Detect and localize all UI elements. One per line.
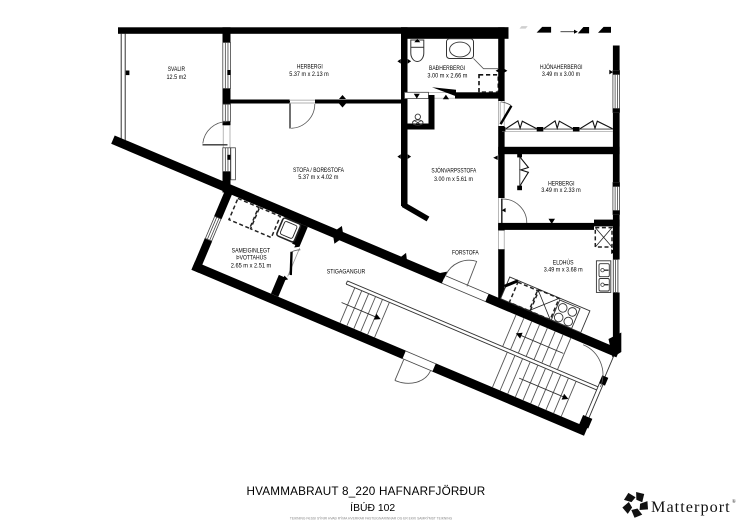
svg-text:2.65 m x 2.51 m: 2.65 m x 2.51 m [231, 262, 272, 269]
svg-text:FORSTOFA: FORSTOFA [452, 249, 479, 256]
svg-text:Matterport: Matterport [651, 498, 731, 516]
svg-text:®: ® [732, 499, 736, 505]
svg-text:HERBERGI: HERBERGI [297, 64, 323, 71]
svg-text:HVAMMABRAUT 8_220 HAFNARFJÖRÐU: HVAMMABRAUT 8_220 HAFNARFJÖRÐUR [247, 485, 486, 498]
svg-text:TEIKNING ÞESSI SÝNIR HVAÐ RÝMA: TEIKNING ÞESSI SÝNIR HVAÐ RÝMA HVERRAR F… [290, 517, 453, 521]
svg-text:ÞVOTTAHÚS: ÞVOTTAHÚS [236, 253, 267, 262]
svg-text:12.5 m2: 12.5 m2 [167, 74, 187, 81]
svg-text:3.49 m x 3.68 m: 3.49 m x 3.68 m [544, 267, 583, 274]
svg-text:5.37 m x 2.13 m: 5.37 m x 2.13 m [289, 71, 329, 78]
svg-text:SAMEIGINLEGT: SAMEIGINLEGT [232, 248, 271, 255]
svg-text:3.00 m x 5.61 m: 3.00 m x 5.61 m [434, 176, 473, 183]
svg-text:SVALIR: SVALIR [168, 66, 186, 73]
svg-text:5.37 m x 4.02 m: 5.37 m x 4.02 m [298, 174, 338, 181]
svg-text:BAÐHERBERGI: BAÐHERBERGI [429, 65, 465, 72]
svg-text:ÍBÚÐ 102: ÍBÚÐ 102 [350, 503, 395, 514]
svg-text:SJÓNVARPSSTOFA: SJÓNVARPSSTOFA [431, 165, 476, 174]
svg-text:STOFA / BORÐSTOFA: STOFA / BORÐSTOFA [293, 167, 345, 174]
svg-text:HJÓNAHERBERGI: HJÓNAHERBERGI [540, 62, 583, 71]
svg-text:ELDHÚS: ELDHÚS [553, 258, 574, 267]
svg-text:STIGAGANGUR: STIGAGANGUR [327, 269, 366, 276]
svg-text:3.49 m x 3.00 m: 3.49 m x 3.00 m [542, 71, 580, 78]
svg-text:3.00 m x 2.66 m: 3.00 m x 2.66 m [427, 72, 467, 79]
svg-text:3.49 m x 2.33 m: 3.49 m x 2.33 m [541, 187, 581, 194]
